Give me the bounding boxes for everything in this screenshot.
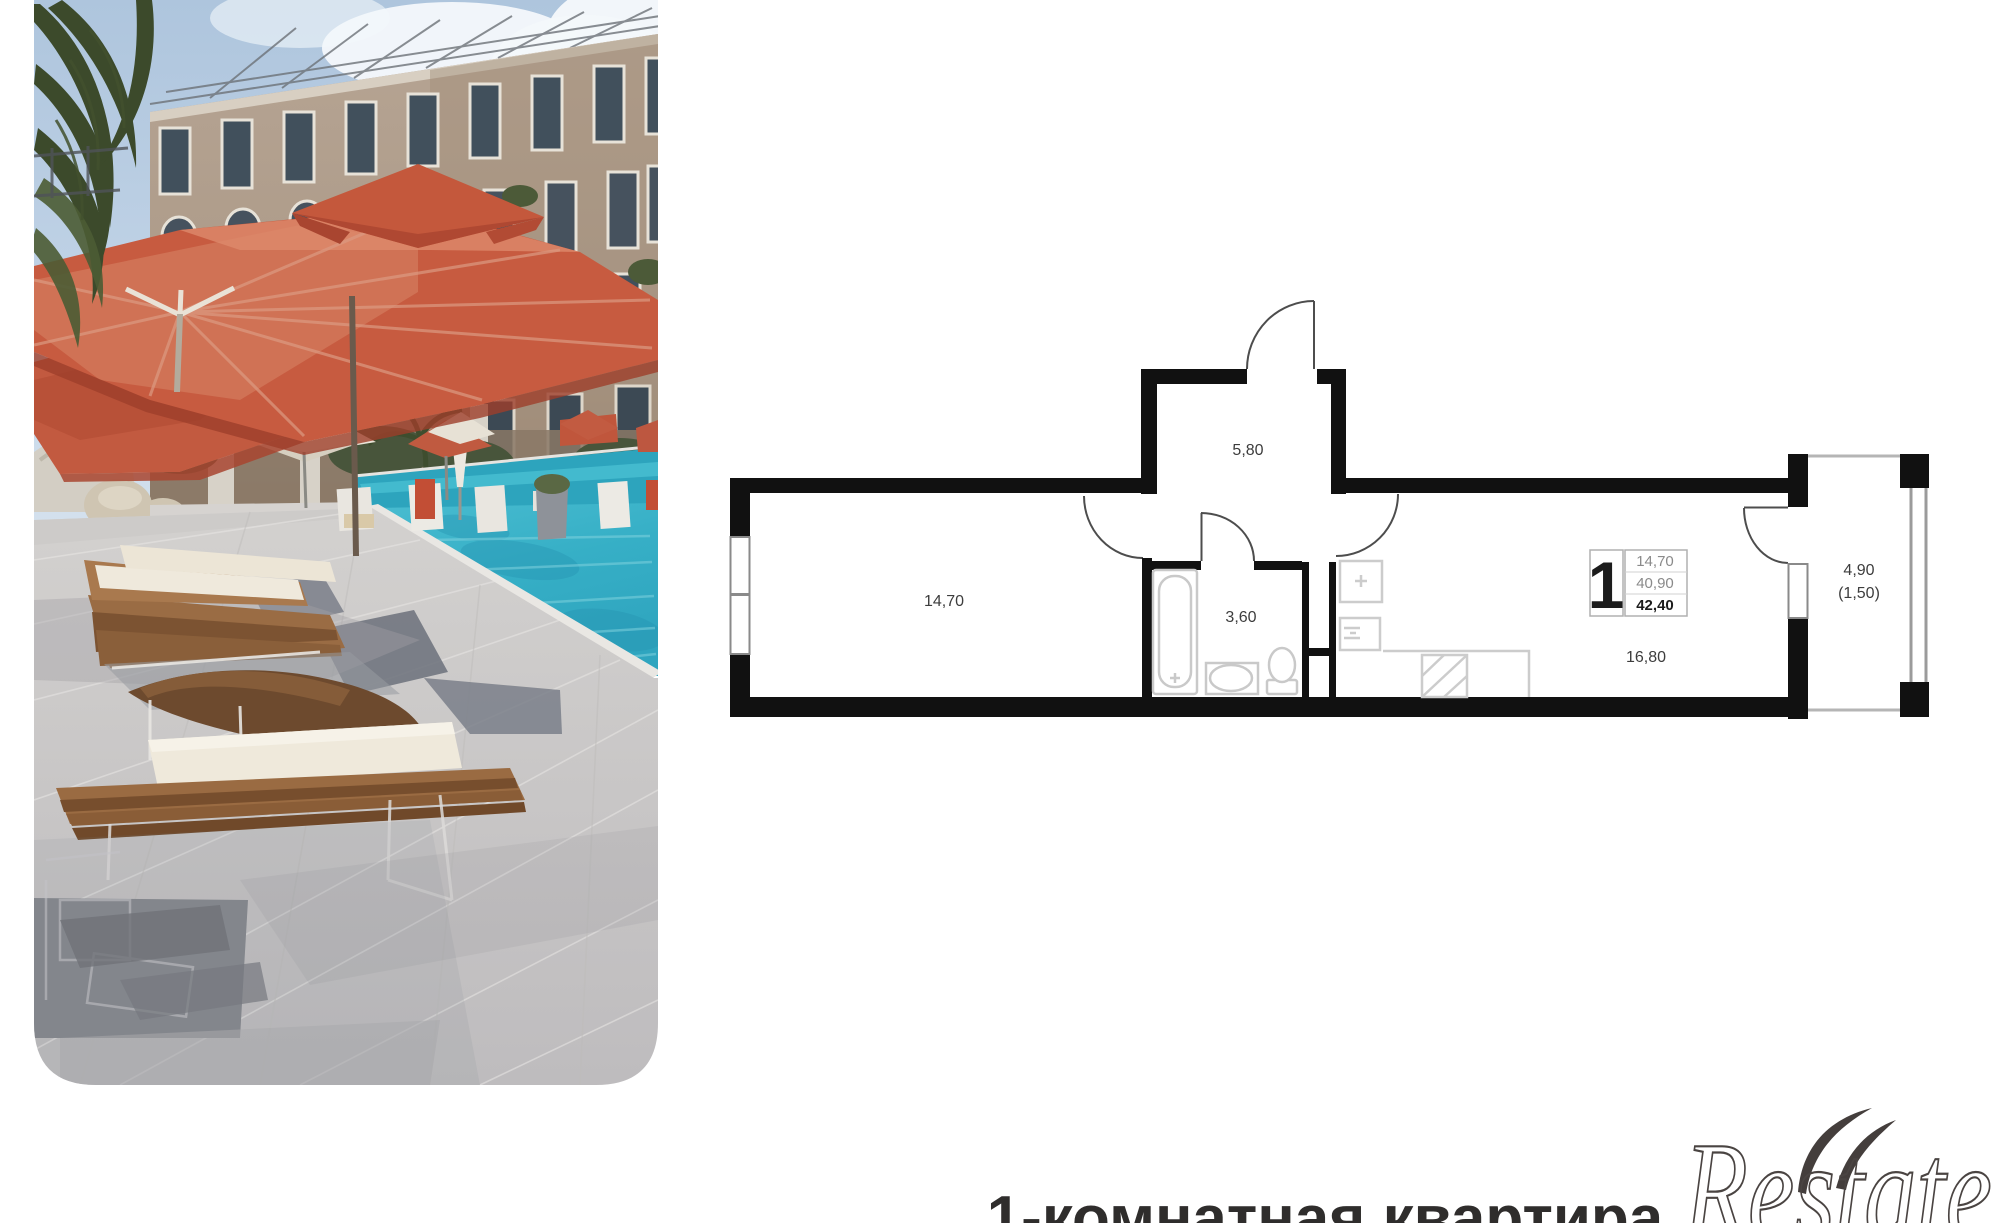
svg-text:14,70: 14,70 (1636, 553, 1674, 570)
svg-text:42,40: 42,40 (1636, 597, 1674, 614)
svg-text:5,80: 5,80 (1232, 442, 1263, 459)
svg-text:14,70: 14,70 (924, 593, 964, 610)
svg-text:16,80: 16,80 (1626, 649, 1666, 666)
svg-text:40,90: 40,90 (1636, 575, 1674, 592)
svg-text:1-комнатная квартира: 1-комнатная квартира (987, 1184, 1664, 1223)
svg-text:1: 1 (1588, 548, 1625, 622)
svg-text:4,90: 4,90 (1843, 562, 1874, 579)
svg-text:3,60: 3,60 (1225, 609, 1256, 626)
svg-text:(1,50): (1,50) (1838, 585, 1880, 602)
svg-text:Restate: Restate (1683, 1114, 1992, 1223)
